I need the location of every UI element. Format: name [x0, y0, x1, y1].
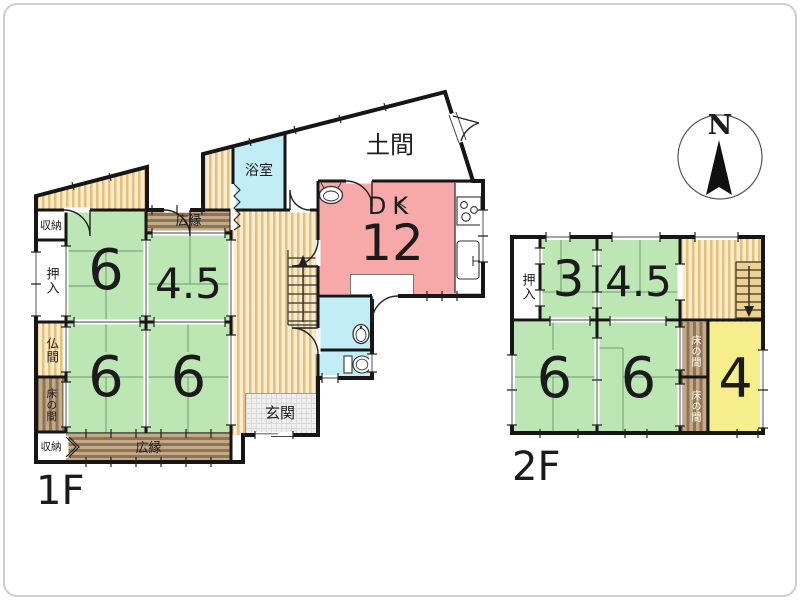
floor-plan-canvas: 土間 浴室 DK 12 収納 押入 広縁 6 4.5 仏間 床の間 6 6 収納…: [0, 0, 800, 600]
room-label-butsuma: 仏間: [38, 326, 64, 374]
floor-label-1f: 1F: [36, 468, 108, 514]
room-label-storage-bottom: 収納: [36, 437, 66, 457]
washroom-area: [317, 295, 372, 350]
corridor-2f: [680, 237, 763, 322]
room-label-veranda-top: 広縁: [146, 211, 231, 232]
room-label-tokonoma-2f-lower: 床の間: [682, 383, 706, 429]
room-label-tokonoma-1f: 床の間: [39, 380, 63, 430]
room-size-dk: 12: [352, 217, 432, 269]
room-label-closet-1f: 押入: [38, 252, 64, 310]
room-size-1f-6-nw: 6: [66, 242, 146, 300]
floor-label-2f: 2F: [512, 444, 584, 490]
room-size-1f-6-sw: 6: [66, 349, 146, 407]
compass-needle-icon: [706, 140, 732, 195]
band-west-of-bath: [203, 146, 233, 210]
room-label-genkan: 玄関: [245, 401, 315, 425]
room-size-2f-3: 3: [540, 250, 597, 308]
room-label-storage-top: 収納: [36, 214, 66, 236]
room-size-1f-6-sc: 6: [146, 349, 231, 407]
dk-back-step: [350, 274, 414, 296]
veranda-nw-strip: [36, 167, 147, 210]
room-size-1f-45: 4.5: [146, 255, 231, 313]
room-label-tokonoma-2f-upper: 床の間: [682, 328, 706, 374]
compass-north-label: N: [704, 110, 736, 140]
room-label-veranda-bottom: 広縁: [66, 437, 231, 459]
room-size-2f-45: 4.5: [597, 254, 680, 310]
room-label-doma: 土間: [352, 130, 428, 160]
room-size-2f-6-c: 6: [597, 350, 680, 408]
room-size-2f-4: 4: [708, 350, 763, 408]
room-size-2f-6-w: 6: [512, 350, 597, 408]
room-label-bathroom: 浴室: [234, 162, 284, 180]
toilet-area: [317, 350, 372, 378]
room-label-closet-2f: 押入: [514, 258, 540, 316]
